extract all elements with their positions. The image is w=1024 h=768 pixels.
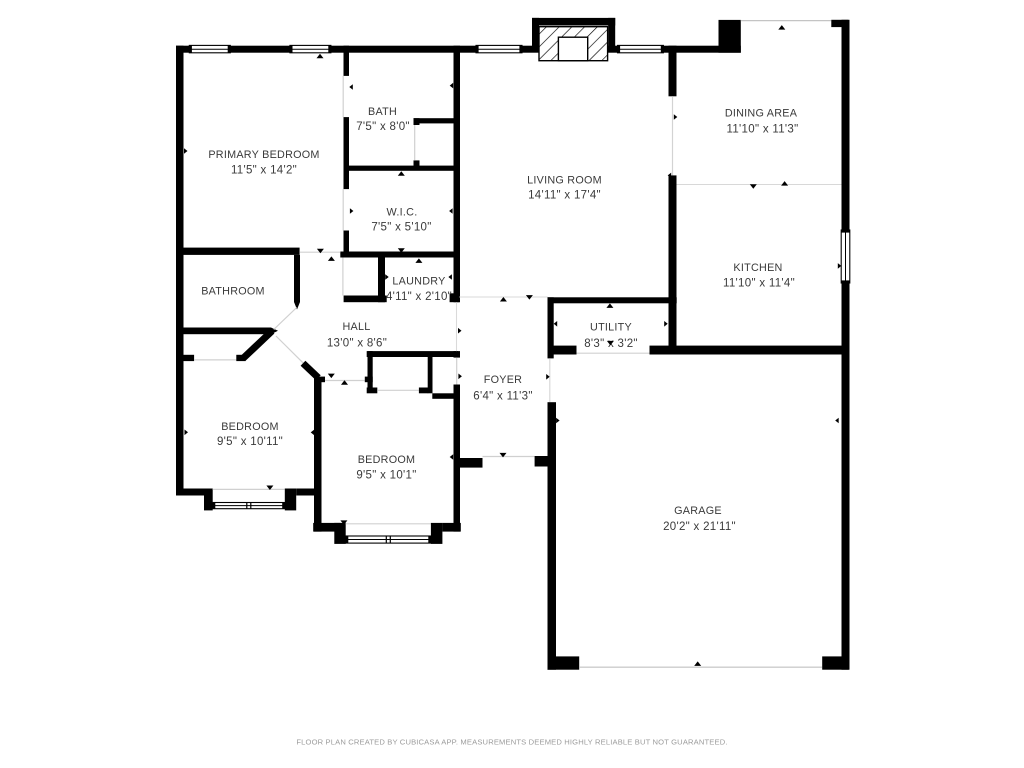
svg-text:HALL: HALL <box>342 321 370 333</box>
svg-text:FLOOR PLAN CREATED BY CUBICASA: FLOOR PLAN CREATED BY CUBICASA APP. MEAS… <box>296 737 727 746</box>
svg-text:UTILITY: UTILITY <box>590 322 632 334</box>
svg-text:9'5" x 10'1": 9'5" x 10'1" <box>356 470 416 482</box>
svg-text:LIVING ROOM: LIVING ROOM <box>527 174 602 186</box>
svg-text:FOYER: FOYER <box>484 374 522 386</box>
svg-text:14'11" x 17'4": 14'11" x 17'4" <box>528 190 601 202</box>
svg-text:11'5" x 14'2": 11'5" x 14'2" <box>231 165 297 177</box>
svg-text:BATH: BATH <box>368 106 397 118</box>
svg-text:7'5" x 8'0": 7'5" x 8'0" <box>356 121 410 133</box>
svg-text:9'5" x 10'11": 9'5" x 10'11" <box>217 436 283 448</box>
svg-text:11'10" x 11'3": 11'10" x 11'3" <box>727 123 799 135</box>
svg-text:7'5" x 5'10": 7'5" x 5'10" <box>371 222 431 234</box>
svg-text:DINING AREA: DINING AREA <box>725 108 798 120</box>
svg-text:BATHROOM: BATHROOM <box>201 285 265 297</box>
svg-text:KITCHEN: KITCHEN <box>733 262 782 274</box>
svg-text:W.I.C.: W.I.C. <box>387 207 418 219</box>
svg-text:BEDROOM: BEDROOM <box>358 454 416 466</box>
svg-text:PRIMARY BEDROOM: PRIMARY BEDROOM <box>208 149 319 161</box>
svg-text:BEDROOM: BEDROOM <box>221 421 279 433</box>
svg-text:20'2" x 21'11": 20'2" x 21'11" <box>663 521 736 533</box>
svg-text:6'4" x 11'3": 6'4" x 11'3" <box>473 390 532 402</box>
svg-text:4'11" x 2'10": 4'11" x 2'10" <box>386 291 452 303</box>
svg-text:GARAGE: GARAGE <box>674 505 722 517</box>
svg-text:11'10" x 11'4": 11'10" x 11'4" <box>723 278 795 290</box>
svg-text:13'0" x 8'6": 13'0" x 8'6" <box>327 338 387 350</box>
svg-text:LAUNDRY: LAUNDRY <box>392 275 445 287</box>
